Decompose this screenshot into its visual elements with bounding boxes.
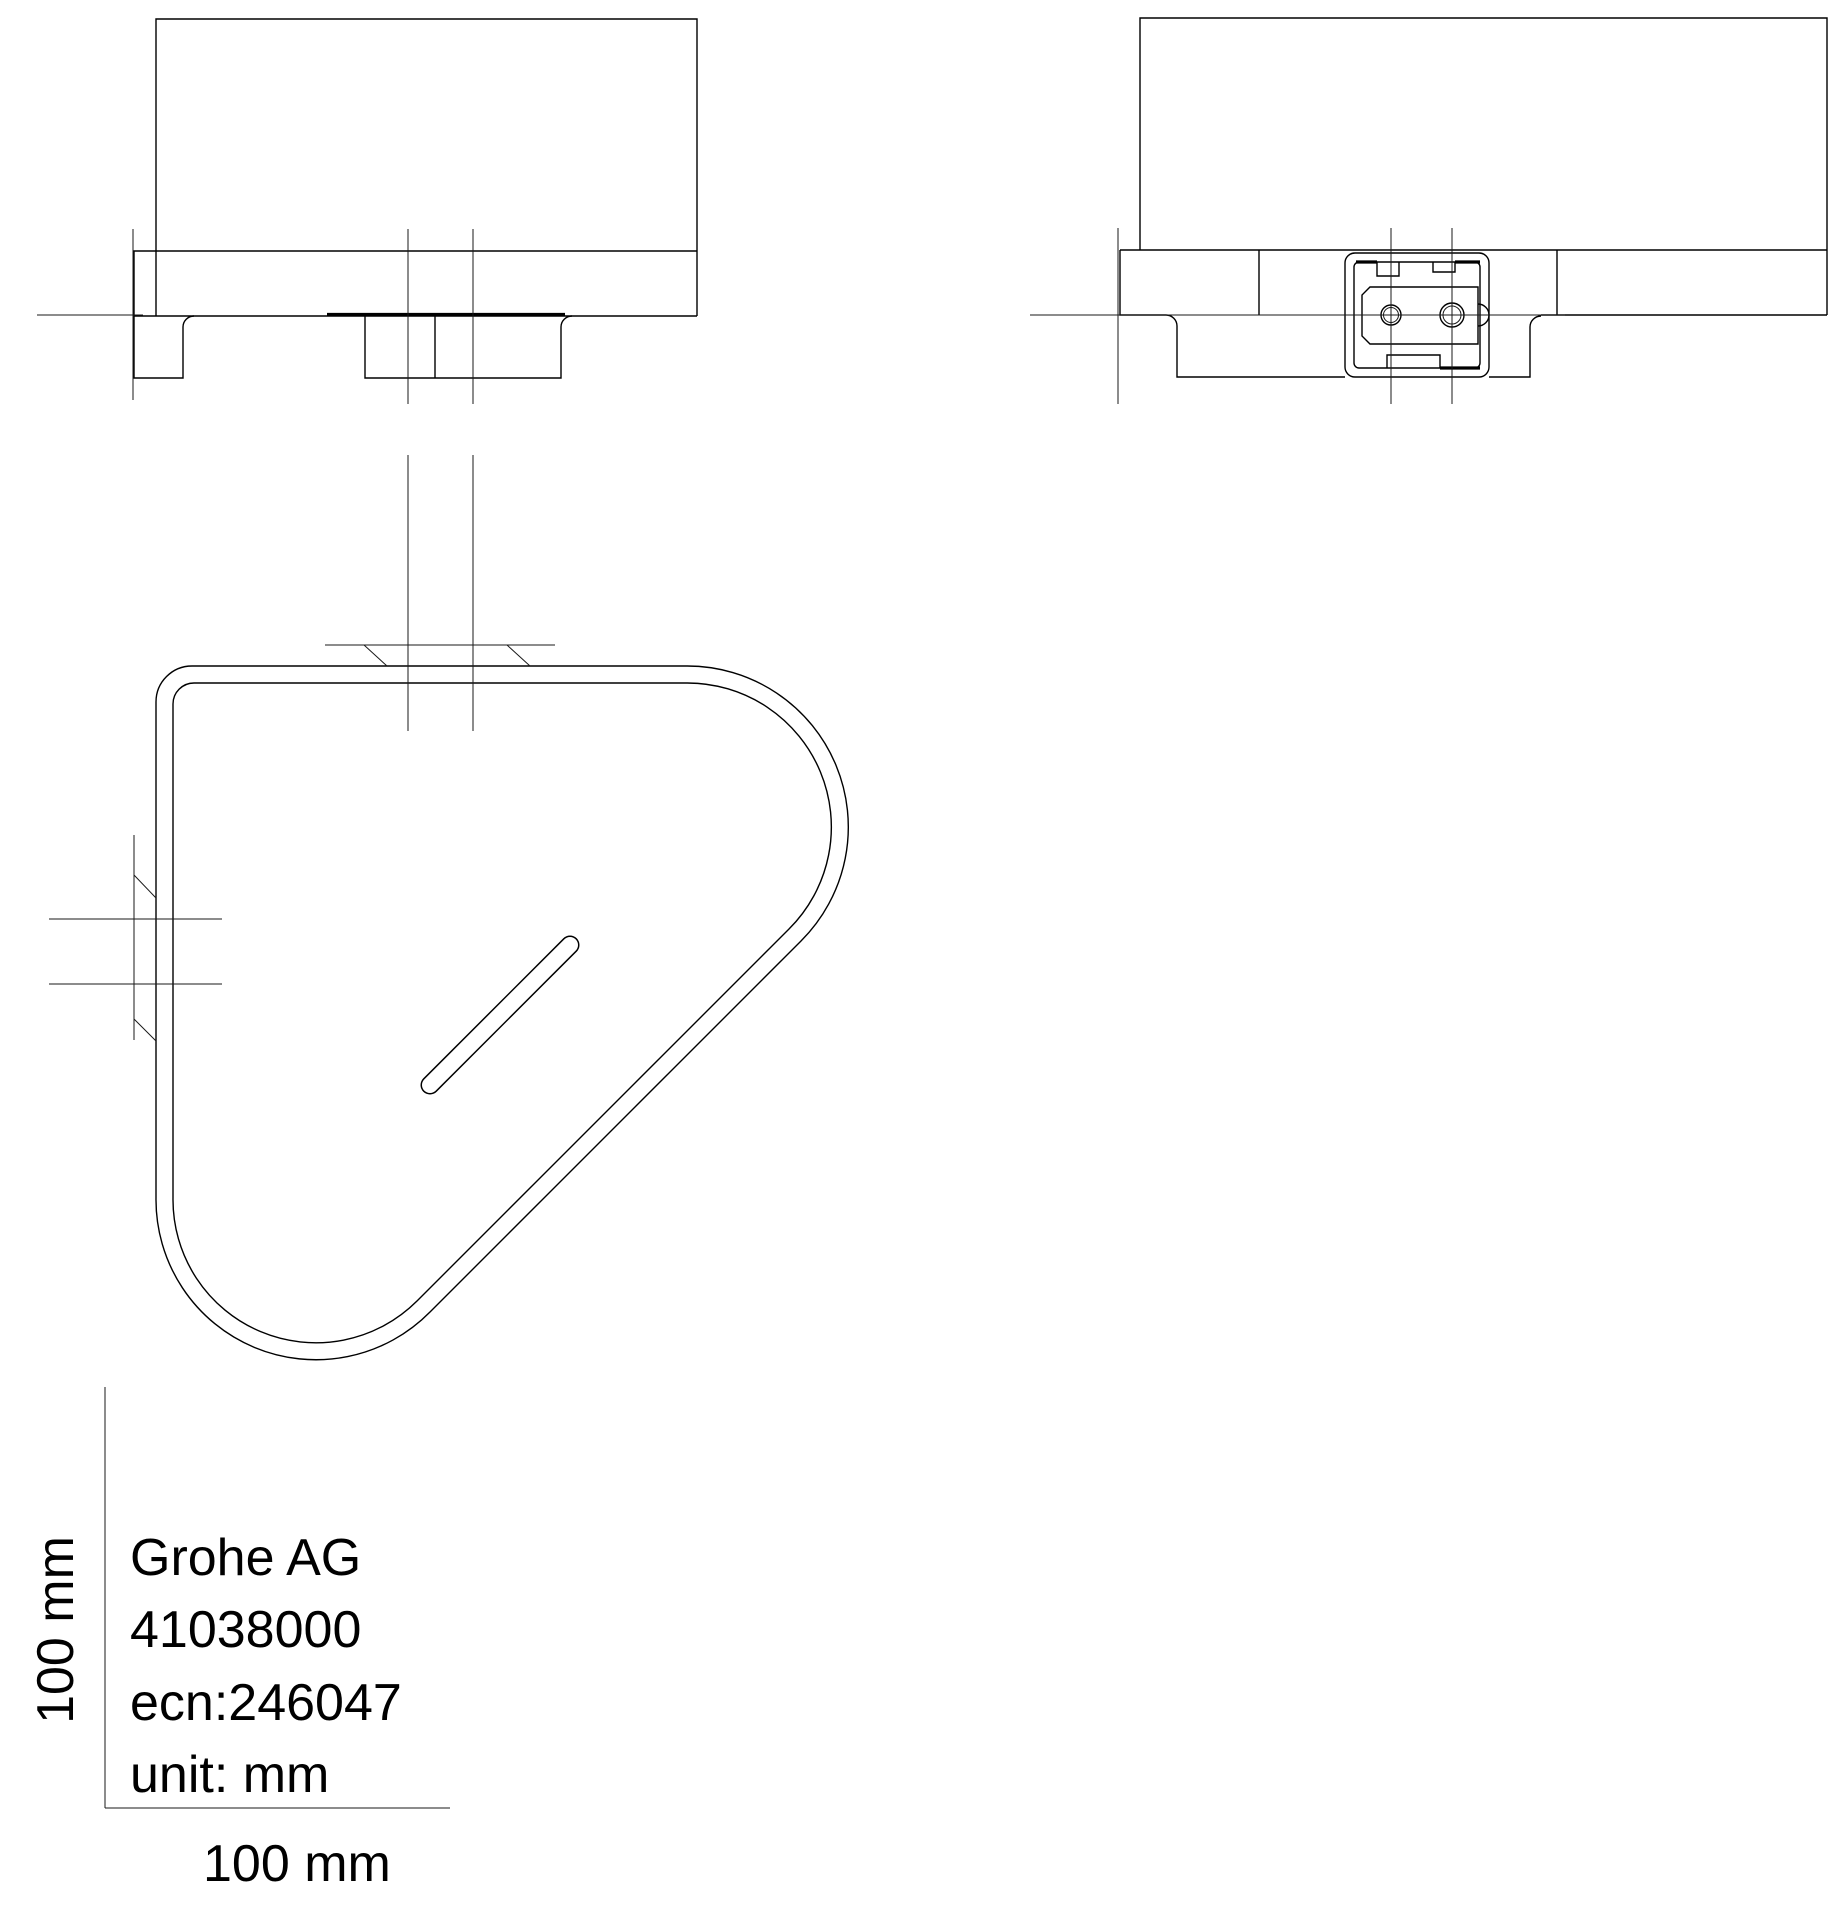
scale-label-vertical: 100 mm <box>30 1536 82 1724</box>
front-view-body-outline <box>156 19 697 251</box>
left-mounting-tab <box>49 835 222 1041</box>
side-view-band-bottom <box>1120 250 1827 377</box>
cad-drawing-sheet: Grohe AG 41038000 ecn:246047 unit: mm 10… <box>0 0 1847 1920</box>
scale-ruler-lines <box>105 1387 450 1808</box>
front-view-band-sides <box>156 251 697 316</box>
top-tab-centerlines <box>408 455 473 731</box>
scale-ruler <box>105 1387 450 1808</box>
left-tab-hatches <box>134 875 156 1041</box>
front-view-center-rail <box>365 316 572 378</box>
side-view-band-divisions <box>1259 250 1557 315</box>
bracket-top-notches <box>1377 262 1455 276</box>
title-block-unit: unit: mm <box>130 1749 329 1801</box>
top-mounting-tab <box>325 455 555 731</box>
title-block-company: Grohe AG <box>130 1532 361 1584</box>
plan-view <box>49 455 848 1360</box>
left-tab-centerlines <box>49 919 222 984</box>
scale-label-horizontal: 100 mm <box>203 1838 391 1890</box>
title-block-product-number: 41038000 <box>130 1604 361 1656</box>
side-view-body-outline <box>1140 18 1827 250</box>
top-tab-hatches <box>364 645 530 666</box>
side-view <box>1030 18 1827 404</box>
drain-slot <box>430 945 570 1085</box>
front-view <box>37 19 697 404</box>
bracket-bottom-notch <box>1387 355 1440 368</box>
title-block-ecn: ecn:246047 <box>130 1677 402 1729</box>
